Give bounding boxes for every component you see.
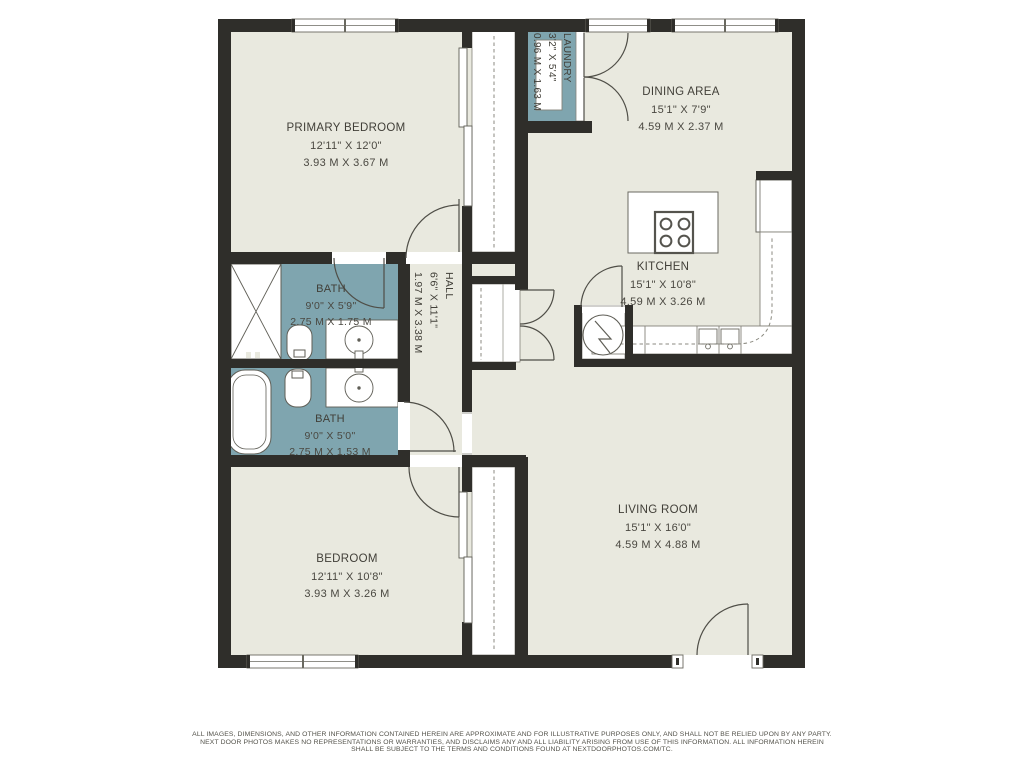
room-dimensions-ft: 3'2" X 5'4" (544, 33, 559, 119)
room-name: BATH (290, 281, 372, 298)
room-dimensions-m: 3.93 M X 3.67 M (286, 155, 405, 173)
window (586, 19, 650, 32)
room-dimensions-m: 4.59 M X 4.88 M (615, 537, 700, 555)
room-dimensions-ft: 15'1" X 10'8" (620, 277, 705, 295)
laundry-door-track (576, 31, 584, 121)
water-heater-icon (583, 315, 623, 355)
room-label-kitchen: KITCHEN 15'1" X 10'8" 4.59 M X 3.26 M (620, 259, 705, 312)
room-name: PRIMARY BEDROOM (286, 120, 405, 138)
disclaimer-line-3: SHALL BE SUBJECT TO THE TERMS AND CONDIT… (0, 746, 1024, 754)
room-label-hall: HALL 6'6" X 11'1" 1.97 M X 3.38 M (408, 272, 456, 390)
room-dimensions-m: 1.97 M X 3.38 M (410, 272, 426, 390)
room-label-dining-area: DINING AREA 15'1" X 7'9" 4.59 M X 2.37 M (638, 84, 723, 137)
room-name: KITCHEN (620, 259, 705, 277)
toilet-icon (285, 369, 311, 407)
room-name: DINING AREA (638, 84, 723, 102)
floorplan-drawing (0, 0, 1024, 768)
disclaimer-line-1: ALL IMAGES, DIMENSIONS, AND OTHER INFORM… (0, 731, 1024, 739)
room-dimensions-ft: 9'0" X 5'0" (289, 428, 371, 445)
room-dimensions-ft: 9'0" X 5'9" (290, 298, 372, 315)
bathtub-icon (228, 370, 271, 454)
room-name: BATH (289, 411, 371, 428)
disclaimer-line-2: NEXT DOOR PHOTOS MAKES NO REPRESENTATION… (0, 739, 1024, 747)
room-dimensions-ft: 15'1" X 16'0" (615, 520, 700, 538)
room-name: BEDROOM (304, 551, 389, 569)
room-name: LIVING ROOM (615, 502, 700, 520)
room-label-bedroom: BEDROOM 12'11" X 10'8" 3.93 M X 3.26 M (304, 551, 389, 604)
room-dimensions-m: 2.75 M X 1.53 M (289, 444, 371, 461)
room-label-primary-bedroom: PRIMARY BEDROOM 12'11" X 12'0" 3.93 M X … (286, 120, 405, 173)
room-dimensions-m: 4.59 M X 2.37 M (638, 119, 723, 137)
room-dimensions-ft: 15'1" X 7'9" (638, 102, 723, 120)
window (672, 19, 778, 32)
window (247, 655, 358, 668)
disclaimer-text: ALL IMAGES, DIMENSIONS, AND OTHER INFORM… (0, 731, 1024, 754)
hall-closet (472, 284, 520, 362)
room-dimensions-ft: 12'11" X 10'8" (304, 569, 389, 587)
room-label-laundry: LAUNDRY 3'2" X 5'4" 0.96 M X 1.63 M (524, 33, 574, 119)
shower-icon (231, 264, 281, 359)
room-dimensions-m: 4.59 M X 3.26 M (620, 294, 705, 312)
room-dimensions-ft: 12'11" X 12'0" (286, 138, 405, 156)
room-label-bath-hall: BATH 9'0" X 5'0" 2.75 M X 1.53 M (289, 411, 371, 461)
counter-right (760, 232, 792, 326)
room-dimensions-m: 0.96 M X 1.63 M (529, 33, 544, 119)
room-label-living-room: LIVING ROOM 15'1" X 16'0" 4.59 M X 4.88 … (615, 502, 700, 555)
room-dimensions-m: 2.75 M X 1.75 M (290, 314, 372, 331)
room-label-bath-primary: BATH 9'0" X 5'9" 2.75 M X 1.75 M (290, 281, 372, 331)
floorplan-page: PRIMARY BEDROOM 12'11" X 12'0" 3.93 M X … (0, 0, 1024, 768)
room-name: HALL (441, 272, 457, 390)
room-dimensions-ft: 6'6" X 11'1" (425, 272, 441, 390)
room-dimensions-m: 3.93 M X 3.26 M (304, 586, 389, 604)
room-name: LAUNDRY (559, 33, 574, 119)
stove-icon (655, 212, 693, 253)
window (292, 19, 398, 32)
fridge-icon (756, 180, 792, 232)
vanity-sink-icon (326, 364, 398, 407)
